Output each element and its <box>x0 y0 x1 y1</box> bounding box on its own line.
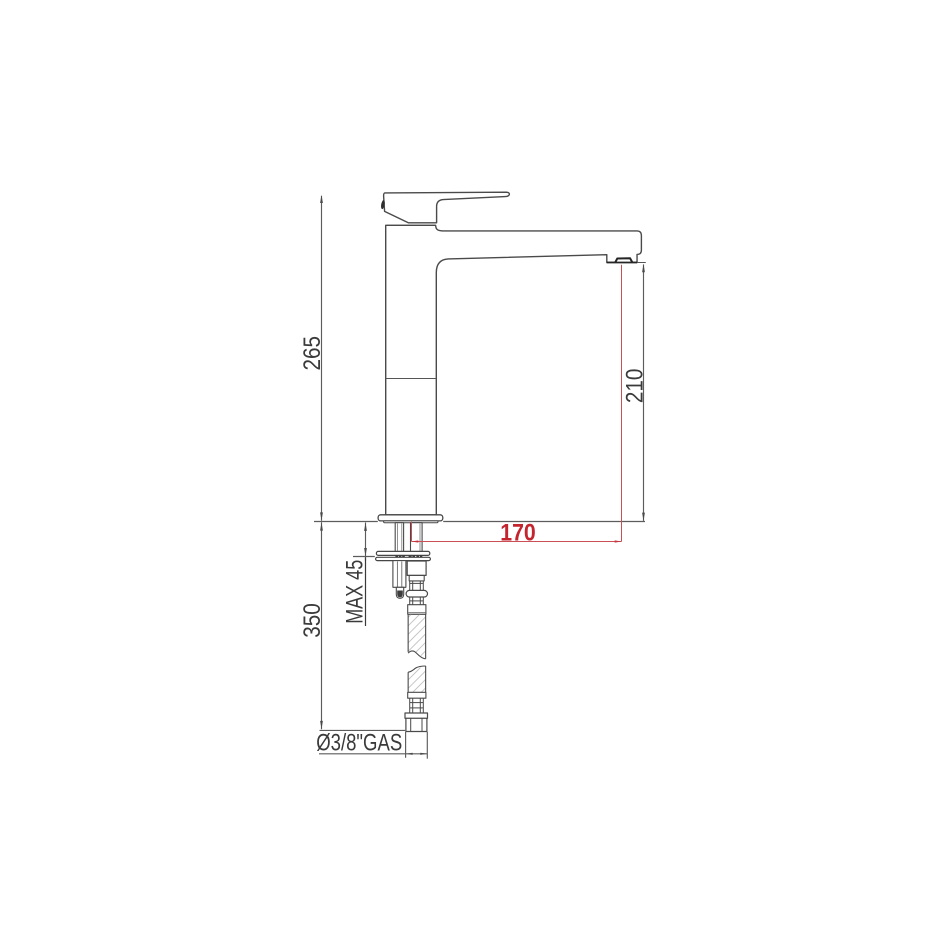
svg-text:350: 350 <box>299 603 326 638</box>
svg-text:210: 210 <box>622 369 649 404</box>
svg-text:265: 265 <box>299 336 326 371</box>
svg-text:Ø3/8"GAS: Ø3/8"GAS <box>316 730 402 757</box>
svg-text:170: 170 <box>500 520 536 547</box>
svg-text:MAX 45: MAX 45 <box>341 560 368 624</box>
